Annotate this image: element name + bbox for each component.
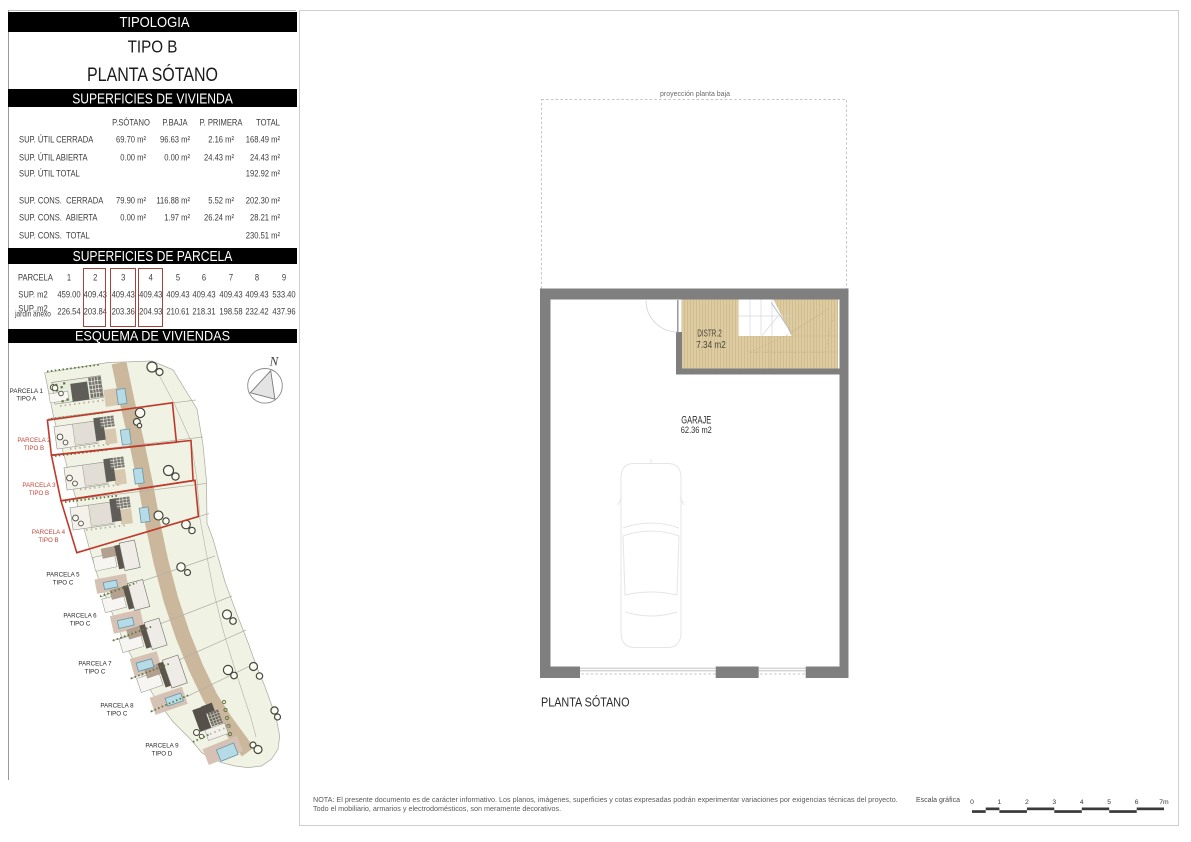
svg-text:PARCELA 2: PARCELA 2 [17,437,51,444]
svg-text:PARCELA 6: PARCELA 6 [63,613,97,620]
svg-text:TIPO B: TIPO B [24,445,44,452]
svg-text:1: 1 [998,799,1002,806]
svg-text:DISTR.2: DISTR.2 [697,328,722,340]
svg-text:PARCELA 9: PARCELA 9 [145,743,179,750]
svg-text:3: 3 [1052,799,1056,806]
svg-text:TIPO B: TIPO B [29,490,49,497]
svg-text:5: 5 [1107,799,1111,806]
svg-text:PARCELA 1: PARCELA 1 [10,388,44,395]
svg-text:PARCELA 4: PARCELA 4 [32,529,66,536]
svg-text:TIPO C: TIPO C [70,621,91,628]
svg-text:TIPO A: TIPO A [16,395,37,402]
svg-text:0: 0 [970,799,974,806]
svg-text:7.34 m2: 7.34 m2 [696,340,726,351]
svg-text:4: 4 [1080,799,1084,806]
svg-text:2: 2 [1025,799,1029,806]
svg-text:N: N [269,354,280,369]
svg-text:62.36 m2: 62.36 m2 [681,425,712,436]
svg-text:proyección planta baja: proyección planta baja [660,91,730,98]
svg-text:6: 6 [1135,799,1139,806]
svg-text:PARCELA 3: PARCELA 3 [22,482,56,489]
svg-text:PARCELA 5: PARCELA 5 [46,572,80,579]
svg-text:TIPO C: TIPO C [107,711,128,718]
svg-text:PARCELA 7: PARCELA 7 [78,661,112,668]
svg-text:PLANTA SÓTANO: PLANTA SÓTANO [541,695,630,710]
svg-text:TIPO C: TIPO C [53,580,74,587]
svg-text:TIPO C: TIPO C [85,669,106,676]
svg-text:PARCELA 8: PARCELA 8 [100,703,134,710]
svg-text:7m: 7m [1159,799,1169,806]
svg-text:TIPO B: TIPO B [38,537,58,544]
svg-text:TIPO D: TIPO D [152,751,173,758]
